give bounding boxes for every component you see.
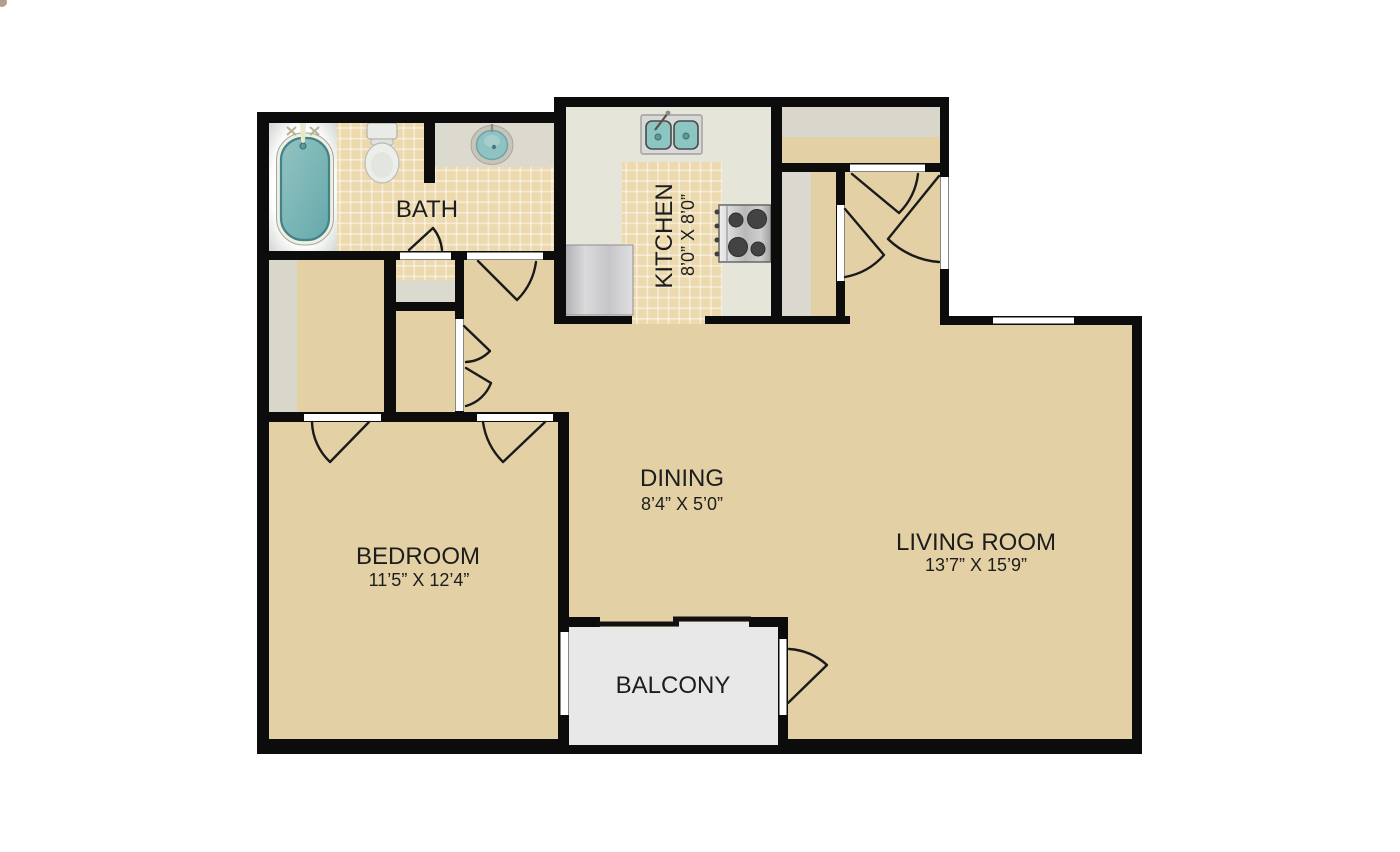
svg-text:LIVING ROOM: LIVING ROOM <box>896 529 1056 556</box>
svg-text:8’0” X 8’0”: 8’0” X 8’0” <box>678 194 698 276</box>
svg-text:11’5” X 12’4”: 11’5” X 12’4” <box>369 570 470 590</box>
svg-text:8’4” X 5’0”: 8’4” X 5’0” <box>641 494 723 514</box>
svg-text:BALCONY: BALCONY <box>616 672 731 699</box>
svg-text:BEDROOM: BEDROOM <box>356 543 480 570</box>
svg-text:13’7” X 15’9”: 13’7” X 15’9” <box>925 555 1027 575</box>
svg-text:BATH: BATH <box>396 196 458 223</box>
svg-text:DINING: DINING <box>640 465 724 492</box>
svg-text:KITCHEN: KITCHEN <box>651 183 678 288</box>
